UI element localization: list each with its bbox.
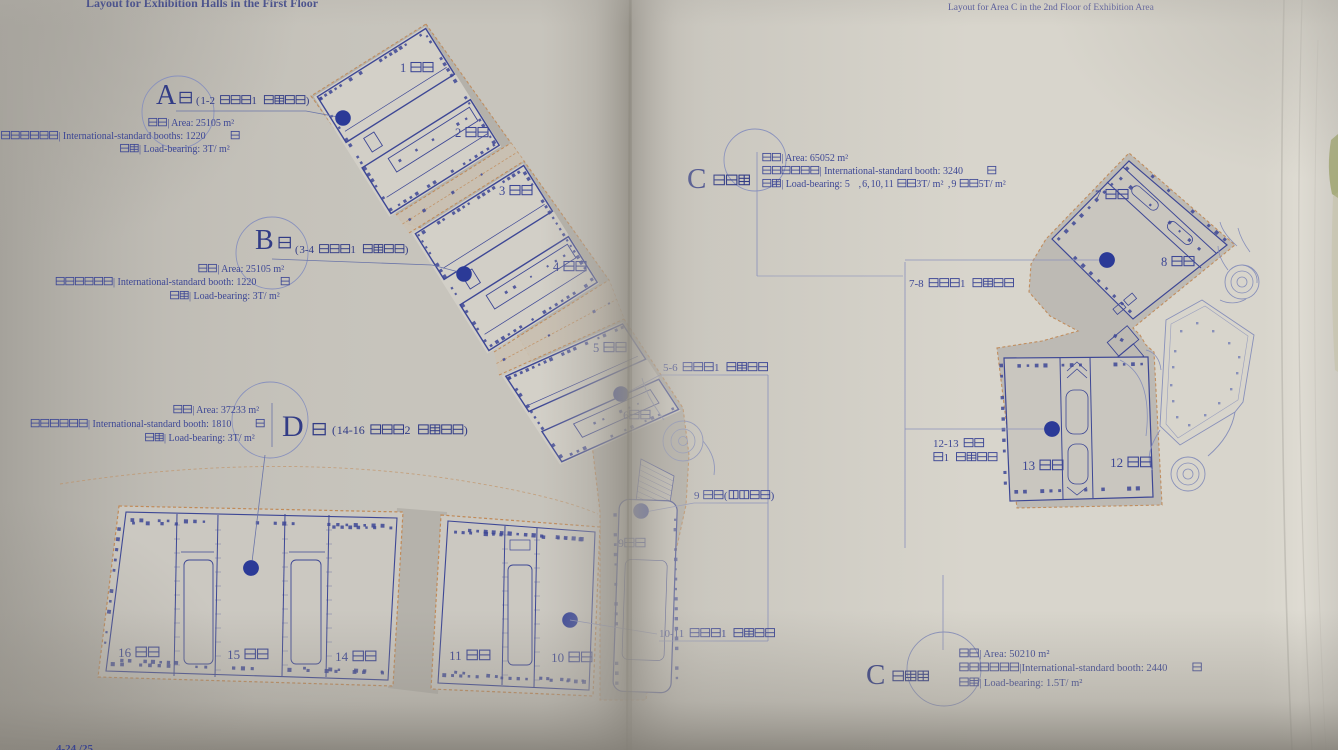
svg-text:A: A <box>156 80 177 111</box>
svg-text:5T/ m²: 5T/ m² <box>979 179 1006 190</box>
svg-text:| Area: 25105 m²: | Area: 25105 m² <box>167 118 234 129</box>
svg-text:1-2: 1-2 <box>200 95 215 107</box>
svg-text:3-4: 3-4 <box>299 244 314 256</box>
svg-text:| Load-bearing: 3T/ m²: | Load-bearing: 3T/ m² <box>139 144 230 155</box>
svg-text:2: 2 <box>405 423 411 437</box>
svg-text:1: 1 <box>350 244 356 256</box>
svg-text:| International-standard booth: | International-standard booths: 1220 <box>58 131 205 142</box>
svg-text:11: 11 <box>884 179 894 190</box>
svg-text:): ) <box>771 490 775 502</box>
svg-text:10: 10 <box>871 179 881 190</box>
svg-text:,: , <box>867 179 870 190</box>
svg-text:| Area: 65052 m²: | Area: 65052 m² <box>781 153 848 164</box>
svg-text:| Load-bearing: 5: | Load-bearing: 5 <box>781 179 850 190</box>
svg-text:): ) <box>306 95 310 107</box>
svg-text:8: 8 <box>1161 255 1167 269</box>
svg-text:,: , <box>881 179 884 190</box>
svg-text:3: 3 <box>499 184 505 198</box>
svg-text:2: 2 <box>455 126 461 140</box>
svg-text:| International-standard booth: | International-standard booth: 1810 <box>88 419 231 430</box>
svg-text:| Load-bearing: 3T/ m²: | Load-bearing: 3T/ m² <box>189 291 280 302</box>
svg-text:| International-standard booth: | International-standard booth: 1220 <box>113 277 256 288</box>
svg-text:): ) <box>405 244 409 256</box>
svg-text:14-16: 14-16 <box>337 423 365 437</box>
svg-text:3T/ m²: 3T/ m² <box>916 179 943 190</box>
svg-text:| Area: 25105 m²: | Area: 25105 m² <box>217 264 284 275</box>
svg-text:,: , <box>948 179 951 190</box>
svg-text:D: D <box>282 410 304 443</box>
svg-text:): ) <box>464 423 468 437</box>
svg-text:12: 12 <box>1110 455 1123 470</box>
svg-text:4-24 /25: 4-24 /25 <box>56 743 93 750</box>
svg-text:(: ( <box>295 244 299 256</box>
svg-text:9: 9 <box>951 179 956 190</box>
svg-text:12-13: 12-13 <box>933 438 959 450</box>
svg-text:1: 1 <box>944 452 950 464</box>
svg-text:,: , <box>859 179 862 190</box>
svg-text:1: 1 <box>400 61 406 75</box>
svg-text:(: ( <box>332 423 336 437</box>
svg-text:1: 1 <box>960 278 966 290</box>
svg-text:(: ( <box>196 95 200 107</box>
svg-text:7: 7 <box>1095 188 1101 202</box>
svg-text:13: 13 <box>1022 458 1035 473</box>
svg-text:| Area: 37233 m²: | Area: 37233 m² <box>192 405 259 416</box>
svg-text:| Load-bearing: 3T/ m²: | Load-bearing: 3T/ m² <box>164 433 255 444</box>
svg-text:7-8: 7-8 <box>909 278 924 290</box>
svg-text:| International-standard booth: | International-standard booth: 3240 <box>820 166 963 177</box>
svg-text:1: 1 <box>251 95 257 107</box>
svg-text:B: B <box>255 225 274 256</box>
